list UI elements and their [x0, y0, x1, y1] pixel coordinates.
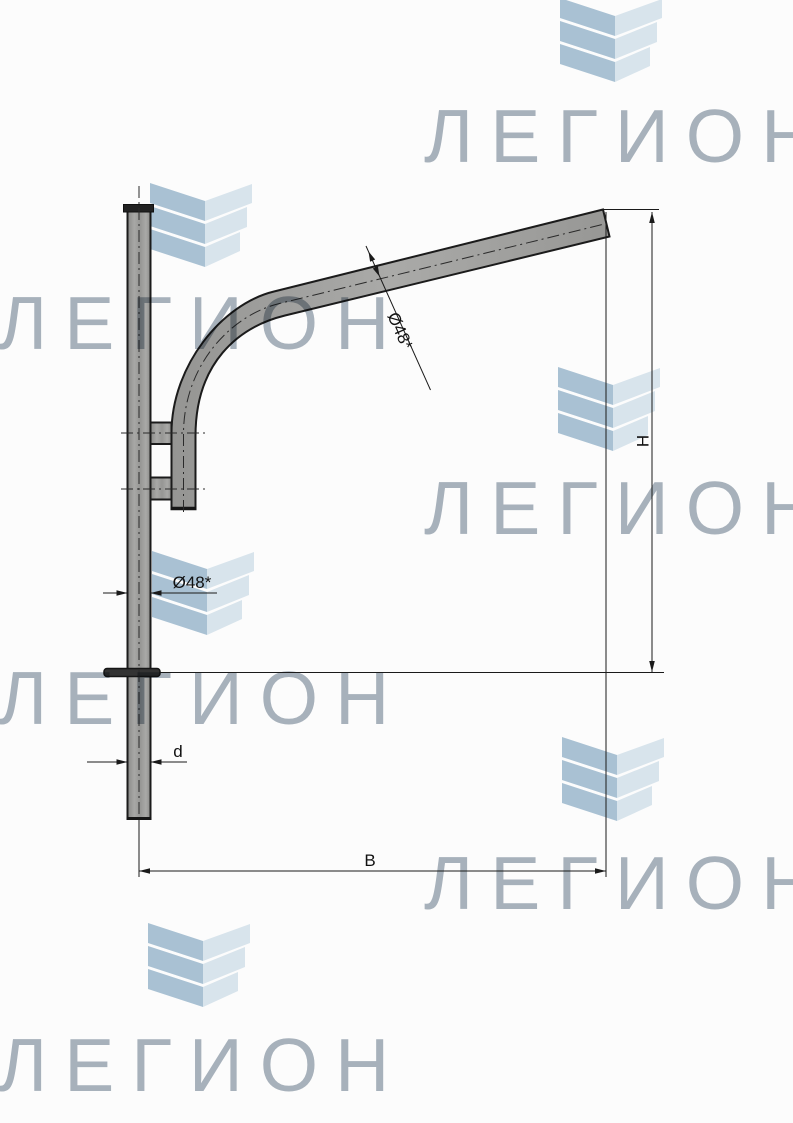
dim-H-label: H — [634, 435, 653, 447]
clamp-lower — [151, 478, 172, 500]
legion-watermark-text: ЛЕГИОН — [0, 1028, 406, 1103]
legion-chevron-icon — [146, 923, 251, 1007]
legion-chevron-icon — [558, 0, 663, 82]
dim-d-arrow-right — [151, 759, 162, 765]
pole-top-cap — [124, 205, 154, 213]
dim-pole-dia-arrow-right — [151, 590, 162, 596]
legion-chevron-icon — [148, 183, 253, 267]
dim-B-arrow-left — [139, 868, 150, 874]
drawing-page: ЛЕГИОН ЛЕГИОН ЛЕГИОН ЛЕГИОН ЛЕГИОН ЛЕГИО… — [0, 0, 793, 1123]
dim-d-arrow-left — [117, 759, 128, 765]
clamp-upper — [151, 423, 172, 445]
dim-pole-dia-label: Ø48* — [173, 573, 212, 592]
dim-d-label: d — [173, 742, 182, 761]
legion-chevron-icon — [150, 551, 255, 635]
legion-watermark-text: ЛЕГИОН — [0, 661, 406, 736]
dim-H-arrow-up — [649, 212, 655, 223]
dim-pole-dia-arrow-left — [117, 590, 128, 596]
dim-B-label: B — [364, 851, 375, 870]
legion-watermark-text: ЛЕГИОН — [424, 99, 793, 174]
legion-watermark-text: ЛЕГИОН — [424, 471, 793, 546]
legion-chevron-icon — [560, 737, 665, 821]
dim-H-arrow-down — [649, 661, 655, 672]
dim-arm-dia-arrow-top — [369, 252, 376, 262]
legion-watermark-text: ЛЕГИОН — [424, 846, 793, 921]
legion-chevron-icon — [556, 367, 661, 451]
legion-watermark-text: ЛЕГИОН — [0, 286, 406, 361]
dim-arm-dia-arrow-bottom — [373, 266, 380, 276]
